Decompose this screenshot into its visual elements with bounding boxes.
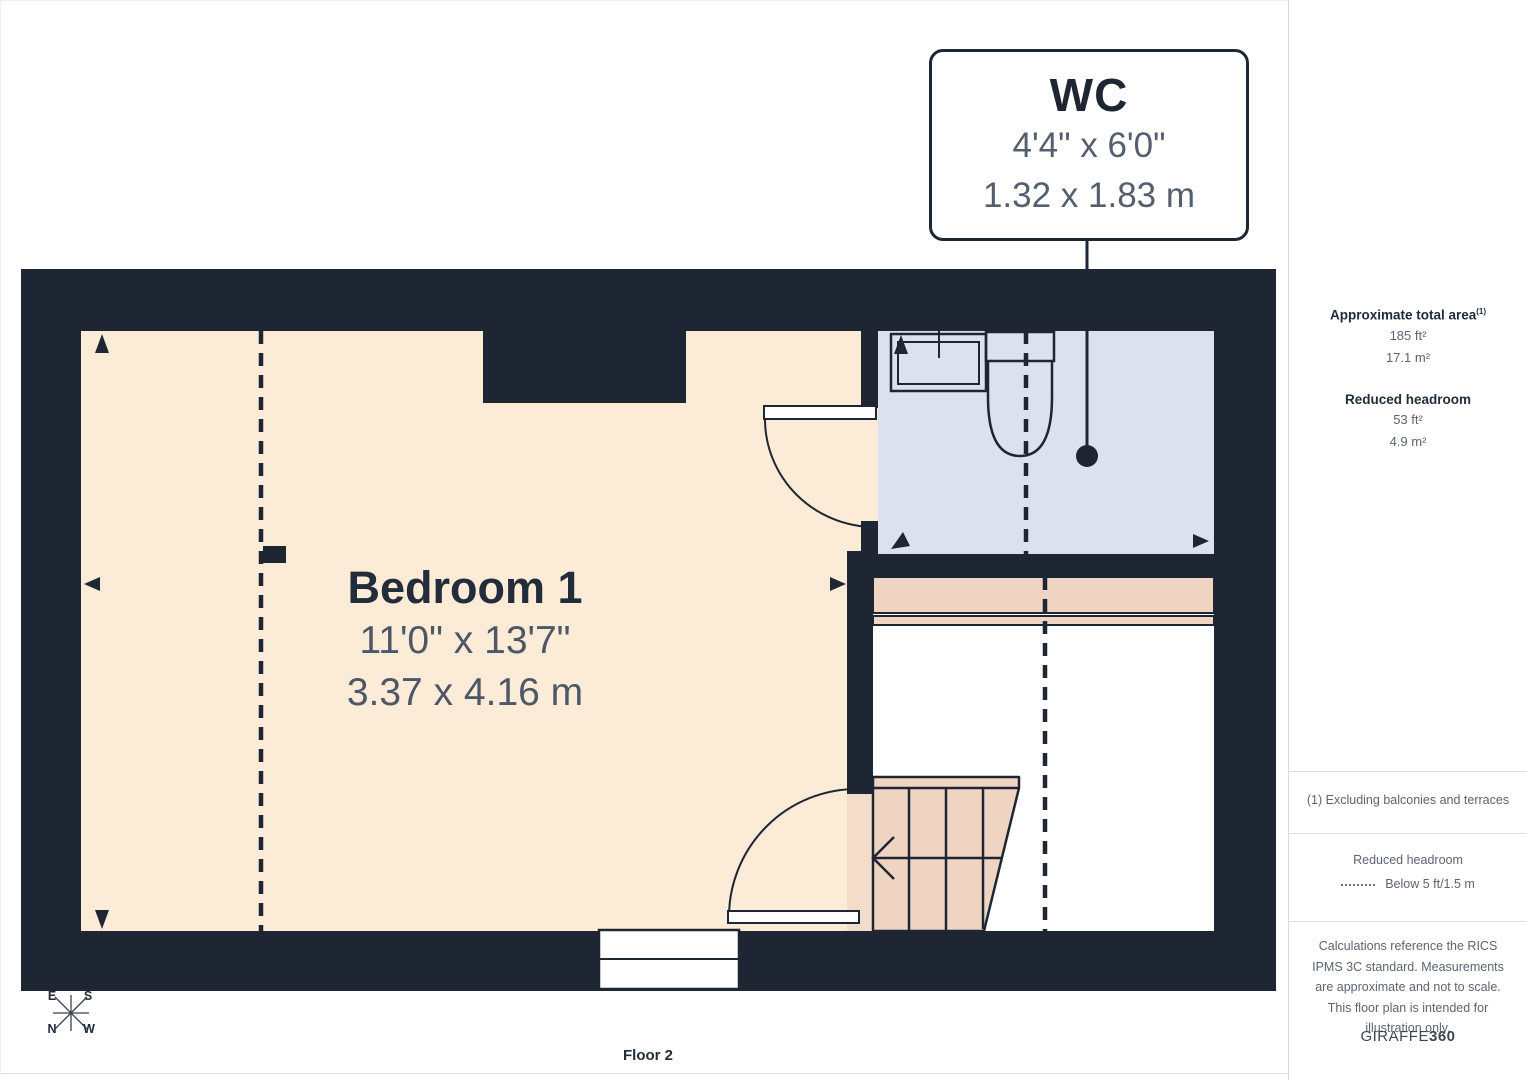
legend-title: Reduced headroom (1289, 853, 1527, 867)
wc-callout: WC 4'4" x 6'0" 1.32 x 1.83 m (929, 49, 1249, 241)
window (599, 930, 739, 989)
legend-item-text: Below 5 ft/1.5 m (1385, 877, 1475, 891)
total-area-heading: Approximate total area(1) (1289, 303, 1527, 325)
floorplan-canvas: WC 4'4" x 6'0" 1.32 x 1.83 m Bedroom 1 1… (0, 0, 1288, 1074)
reduced-headroom-imperial: 53 ft² (1289, 409, 1527, 431)
area-footnote: (1) Excluding balconies and terraces (1289, 793, 1527, 807)
brand-logo: GIRAFFE360 (1289, 1028, 1527, 1045)
compass-north-label: N (47, 1022, 56, 1036)
bedroom-imperial: 11'0" x 13'7" (347, 615, 583, 667)
wall-stub (263, 546, 286, 563)
bedroom-name: Bedroom 1 (347, 561, 583, 615)
sidebar-divider (1289, 771, 1527, 772)
stair-dividing-wall (847, 551, 873, 794)
wall-notch (483, 331, 686, 403)
wc-floor (878, 331, 1214, 554)
compass-south-label: S (84, 989, 92, 1003)
wc-callout-metric: 1.32 x 1.83 m (983, 171, 1195, 221)
disclaimer-text: Calculations reference the RICS IPMS 3C … (1309, 936, 1507, 1039)
bedroom-label: Bedroom 1 11'0" x 13'7" 3.37 x 4.16 m (347, 561, 583, 719)
brand-suffix: 360 (1429, 1028, 1456, 1045)
reduced-headroom-heading: Reduced headroom (1289, 391, 1527, 409)
reduced-headroom-metric: 4.9 m² (1289, 431, 1527, 453)
wc-callout-title: WC (1050, 69, 1129, 121)
dashed-line-icon (1341, 884, 1375, 886)
sidebar-divider (1289, 833, 1527, 834)
floor-label: Floor 2 (623, 1047, 673, 1064)
area-stats: Approximate total area(1) 185 ft² 17.1 m… (1289, 303, 1527, 453)
total-area-imperial: 185 ft² (1289, 325, 1527, 347)
total-area-heading-text: Approximate total area (1330, 308, 1476, 323)
total-area-metric: 17.1 m² (1289, 347, 1527, 369)
info-sidebar: Approximate total area(1) 185 ft² 17.1 m… (1288, 0, 1527, 1080)
compass-east-label: E (48, 989, 56, 1003)
compass-west-label: W (83, 1022, 95, 1036)
brand-name: GIRAFFE (1360, 1028, 1429, 1045)
sidebar-divider (1289, 921, 1527, 922)
bedroom-metric: 3.37 x 4.16 m (347, 667, 583, 719)
legend-row: Below 5 ft/1.5 m (1289, 877, 1527, 891)
wc-doorway-gap (859, 408, 878, 521)
wc-callout-imperial: 4'4" x 6'0" (1012, 121, 1165, 171)
floorplan-page: WC 4'4" x 6'0" 1.32 x 1.83 m Bedroom 1 1… (0, 0, 1527, 1080)
total-area-footnote-marker: (1) (1476, 307, 1486, 316)
